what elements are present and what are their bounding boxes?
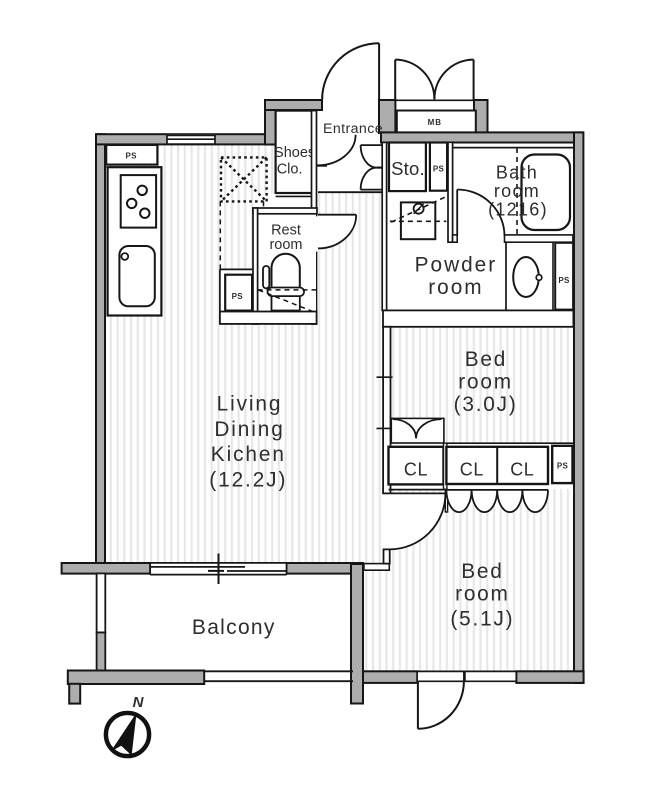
svg-text:PS: PS bbox=[232, 292, 244, 301]
svg-text:Kichen: Kichen bbox=[211, 443, 286, 466]
svg-text:PS: PS bbox=[557, 462, 569, 471]
svg-text:Balcony: Balcony bbox=[192, 616, 276, 639]
svg-text:N: N bbox=[133, 694, 145, 711]
svg-text:room: room bbox=[455, 583, 510, 606]
svg-text:room: room bbox=[428, 276, 483, 299]
svg-text:(5.1J): (5.1J) bbox=[450, 608, 514, 631]
svg-text:PS: PS bbox=[125, 152, 137, 161]
svg-text:Sto.: Sto. bbox=[391, 158, 425, 179]
svg-text:CL: CL bbox=[510, 460, 534, 480]
svg-text:Living: Living bbox=[217, 393, 283, 416]
svg-text:Dining: Dining bbox=[214, 418, 284, 441]
svg-text:CL: CL bbox=[404, 460, 428, 480]
svg-text:(3.0J): (3.0J) bbox=[454, 393, 518, 416]
svg-text:Shoes: Shoes bbox=[274, 145, 315, 161]
svg-text:room: room bbox=[494, 181, 540, 201]
svg-text:Bed: Bed bbox=[465, 348, 507, 371]
svg-text:MB: MB bbox=[428, 118, 442, 127]
svg-text:Clo.: Clo. bbox=[277, 162, 303, 178]
svg-text:PS: PS bbox=[433, 164, 445, 173]
svg-text:Powder: Powder bbox=[415, 254, 498, 277]
svg-text:Entrance: Entrance bbox=[323, 121, 383, 137]
svg-text:Bed: Bed bbox=[461, 560, 503, 583]
svg-text:room: room bbox=[269, 237, 302, 253]
svg-text:room: room bbox=[458, 370, 513, 393]
svg-text:Bath: Bath bbox=[496, 163, 538, 183]
svg-text:(12.2J): (12.2J) bbox=[209, 468, 287, 491]
svg-text:PS: PS bbox=[558, 276, 570, 285]
svg-text:Rest: Rest bbox=[271, 222, 301, 238]
svg-text:CL: CL bbox=[460, 460, 484, 480]
